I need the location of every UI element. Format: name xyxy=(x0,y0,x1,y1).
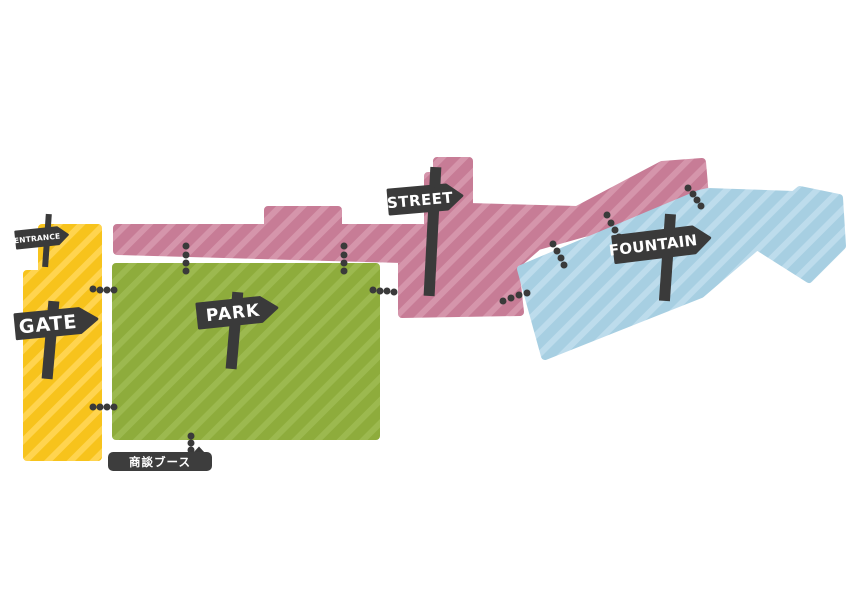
zone-park xyxy=(116,267,376,436)
venue-map: ENTRANCE GATE PARK STREET FOUNTAIN xyxy=(0,0,859,612)
zone-gate xyxy=(27,228,98,457)
connector-park-booth xyxy=(188,433,195,454)
booth-label-text: 商談ブース xyxy=(129,455,191,469)
connector-gate-park-upper xyxy=(90,286,118,294)
connector-gate-park-lower xyxy=(90,404,118,411)
connector-street-park-left xyxy=(183,243,190,275)
booth-label: 商談ブース xyxy=(108,447,212,472)
venue-map-canvas: ENTRANCE GATE PARK STREET FOUNTAIN xyxy=(0,0,859,612)
